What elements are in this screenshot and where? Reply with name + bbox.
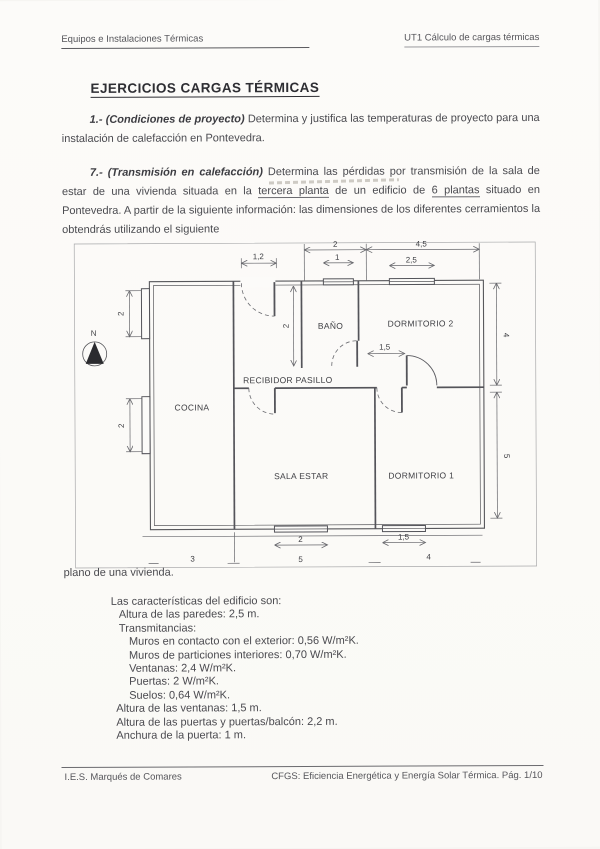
dim-leftwin2: 2 (117, 423, 126, 428)
bottom-ext-line (142, 535, 482, 536)
room-label-cocina: COCINA (174, 402, 209, 412)
dim-topwin-span: 2 (333, 240, 338, 249)
characteristic-line: Ventanas: 2,4 W/m²K. (129, 662, 359, 676)
dim-right4: 4 (502, 333, 511, 338)
dim-topwin: 1 (335, 253, 340, 262)
footer-school: I.E.S. Marqués de Comares (65, 772, 182, 784)
dim-entrance-door: 1,2 (253, 252, 265, 261)
north-label: N (91, 329, 97, 338)
footer-rule (61, 765, 543, 768)
dim-dorm1win: 1,5 (398, 533, 410, 542)
figure-caption: plano de una vivienda. (64, 567, 174, 579)
room-label-dormitorio1: DORMITORIO 1 (388, 470, 454, 480)
window-left-1 (141, 289, 149, 339)
characteristic-line: Puertas: 2 W/m²K. (129, 675, 359, 689)
dim-dorm2-door: 1,5 (379, 343, 391, 352)
dim-right5-line (497, 392, 498, 518)
dim-width-dorm1: 4 (426, 552, 431, 561)
wall-cocina (233, 281, 234, 529)
header-course: Equipos e Instalaciones Térmicas (61, 33, 309, 49)
characteristic-line: Altura de las puertas y puertas/balcón: … (116, 715, 359, 729)
dim-topright-win: 2,5 (406, 255, 418, 264)
building-characteristics: Las características del edificio son: Al… (111, 595, 360, 744)
scanned-page: Equipos e Instalaciones Térmicas UT1 Cál… (0, 0, 600, 849)
room-label-bano: BAÑO (318, 321, 343, 331)
dorm1-door-arc (377, 388, 402, 413)
dim-right5: 5 (502, 454, 511, 459)
characteristic-line: Muros de particiones interiores: 0,70 W/… (129, 648, 359, 662)
dorm2-door-arc (407, 355, 437, 385)
wall-sala-dorm1 (375, 388, 376, 529)
page-title: EJERCICIOS CARGAS TÉRMICAS (91, 80, 320, 96)
dim-width-cocina: 3 (190, 554, 195, 563)
exercise-1-paragraph: 1.- (Condiciones de proyecto) Determina … (62, 109, 540, 149)
characteristic-line: Anchura de la puerta: 1 m. (116, 729, 359, 743)
dim-leftwin1: 2 (117, 311, 126, 316)
characteristic-line: Transmitancias: (119, 622, 359, 636)
floor-plan-figure: 1,5 1,2 2 (71, 235, 542, 577)
room-label-sala: SALA ESTAR (274, 471, 328, 481)
footer-program-page: CFGS: Eficiencia Energética y Energía So… (271, 770, 542, 782)
dim-topright-span: 4,5 (416, 239, 428, 248)
dim-hall: 2 (282, 323, 291, 328)
sala-door-arc (249, 388, 275, 414)
exercise-7-underlined-1: tercera planta (258, 185, 329, 198)
exercise-7-text-2: de un edificio de (329, 184, 432, 196)
header-unit: UT1 Cálculo de cargas térmicas (404, 32, 539, 48)
room-label-dormitorio2: DORMITORIO 2 (388, 318, 454, 328)
entrance-opening (240, 277, 275, 287)
exercise-7-paragraph: 7.- (Transmisión en calefacción) Determi… (62, 162, 540, 240)
dim-salawin: 2 (298, 535, 303, 544)
north-arrow-icon (86, 342, 104, 364)
exercise-1-name: (Condiciones de proyecto) (106, 113, 245, 126)
exercise-7-number: 7.- (90, 167, 103, 179)
characteristic-line: Altura de las paredes: 2,5 m. (119, 608, 359, 622)
exercise-1-number: 1.- (90, 114, 103, 126)
page-header: Equipos e Instalaciones Térmicas UT1 Cál… (61, 32, 539, 49)
floor-plan-svg: 1,5 1,2 2 (71, 235, 542, 572)
page-footer: I.E.S. Marqués de Comares CFGS: Eficienc… (65, 770, 543, 783)
bano-door-arc (332, 341, 357, 366)
characteristic-line: Suelos: 0,64 W/m²K. (129, 689, 359, 703)
window-left-2 (142, 397, 150, 454)
exercise-7-name: (Transmisión en calefacción) (108, 166, 263, 179)
dim-width-sala: 5 (298, 555, 303, 564)
room-label-recibidor: RECIBIDOR PASILLO (243, 375, 333, 385)
characteristics-intro: Las características del edificio son: (111, 595, 359, 609)
characteristic-line: Altura de las ventanas: 1,5 m. (116, 702, 359, 716)
exercise-7-underlined-2: 6 plantas (432, 184, 480, 197)
characteristic-line: Muros en contacto con el exterior: 0,56 … (129, 635, 359, 649)
entrance-door-arc (241, 283, 274, 316)
